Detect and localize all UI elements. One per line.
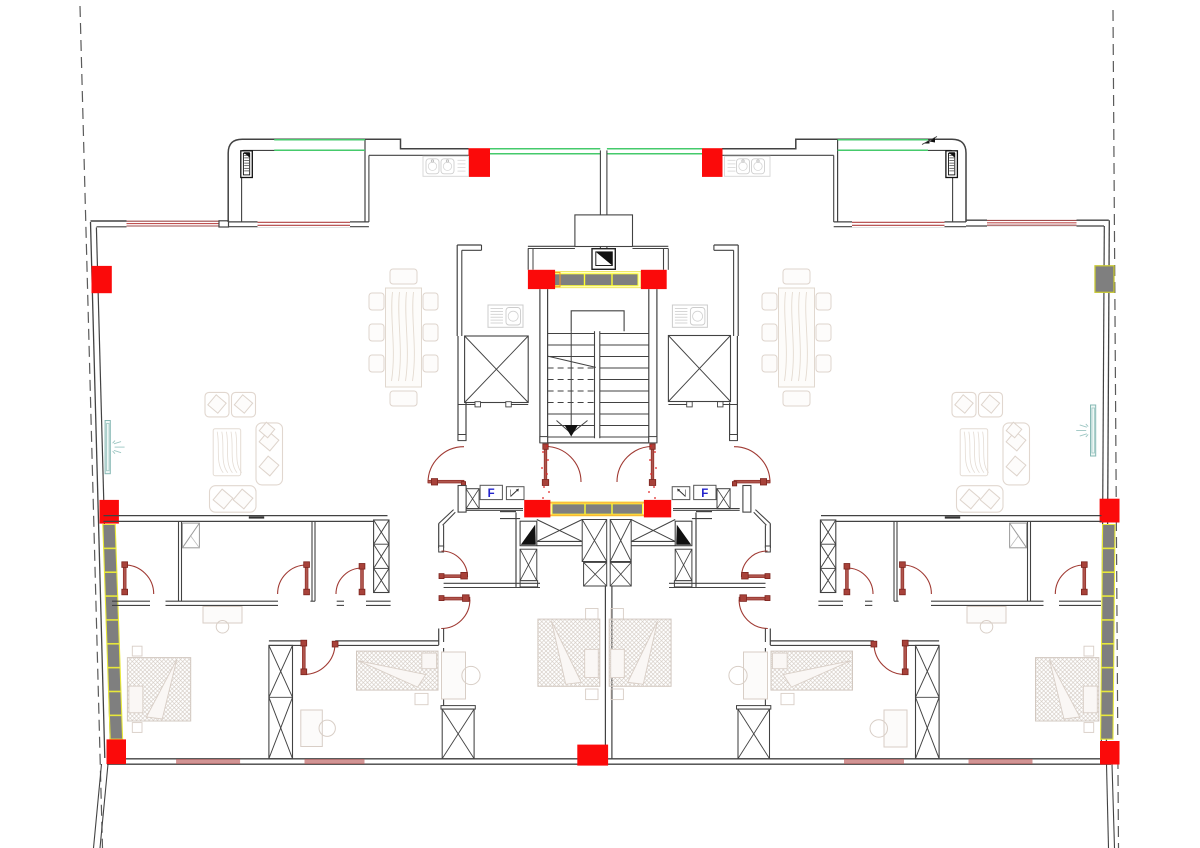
svg-text:F: F [701, 488, 708, 500]
svg-text:F: F [488, 488, 495, 500]
